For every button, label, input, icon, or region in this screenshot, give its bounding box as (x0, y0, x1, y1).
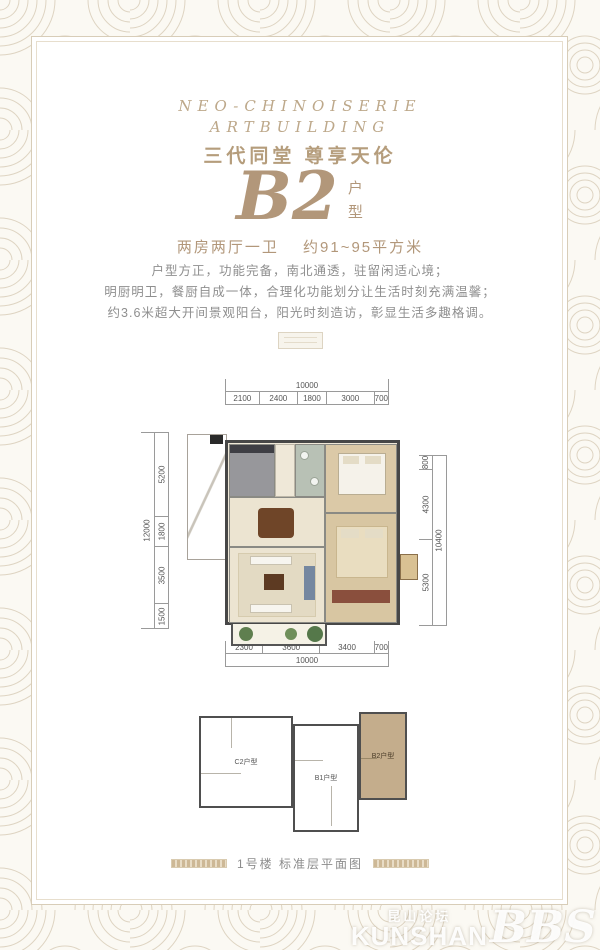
standard-floor-key-plan: C2户型 B1户型 B2户型 (197, 706, 409, 836)
keyplan-unit-label: C2户型 (235, 757, 258, 767)
bed (338, 453, 386, 495)
dimension-chain-right: 800 4300 5300 10400 (419, 455, 447, 626)
description-line: 明厨明卫，餐厨自成一体，合理化功能划分让生活时刻充满温馨； (0, 282, 600, 303)
dining-area (229, 497, 325, 547)
bath-fixture (310, 477, 319, 486)
dimension-value: 3000 (327, 392, 375, 404)
pillow (365, 456, 381, 464)
legend-box (278, 332, 323, 349)
sofa (250, 604, 292, 613)
landscape-balcony (231, 624, 327, 646)
watermark: 昆山论坛 KUNSHAN BBS (351, 908, 596, 948)
floor-caption: 1号楼 标准层平面图 (0, 855, 600, 872)
dimension-total-row: 10000 (225, 379, 389, 392)
plant (285, 628, 297, 640)
unit-rooms-spec: 两房两厅一卫 (177, 239, 279, 256)
dimension-value: 2100 (226, 392, 260, 404)
ornament-bar-right (373, 859, 429, 868)
open-terrace (187, 434, 227, 560)
poster-page: NEO-CHINOISERIE ARTBUILDING 三代同堂 尊享天伦 B2… (0, 0, 600, 950)
tv-cabinet (304, 566, 315, 600)
kitchen-area (229, 444, 275, 497)
english-title-line1: NEO-CHINOISERIE (0, 97, 600, 115)
dimension-total: 10000 (226, 379, 389, 391)
description-line: 约3.6米超大开间景观阳台，阳光时刻造访，彰显生活多趣格调。 (0, 303, 600, 324)
ornament-bar-left (171, 859, 227, 868)
dimension-total: 12000 (141, 433, 154, 629)
kitchen-counter (230, 445, 274, 453)
english-title-line2: ARTBUILDING (0, 118, 600, 136)
watermark-bbs: BBS (490, 908, 596, 948)
floor-plan (187, 428, 422, 648)
dimension-value: 5200 (155, 433, 168, 517)
caption-text: 1号楼 标准层平面图 (237, 855, 363, 872)
keyplan-unit-c2: C2户型 (199, 716, 293, 808)
watermark-kunshan: KUNSHAN (351, 925, 488, 948)
pillow (341, 529, 359, 538)
dimension-value: 1500 (155, 604, 168, 629)
master-bedroom-area (325, 513, 397, 623)
structural-column (210, 435, 223, 444)
plant (239, 627, 253, 641)
unit-type-char-top: 户 (348, 177, 364, 198)
dimension-segments-col: 5200 1800 3500 1500 (155, 432, 169, 629)
master-bed (336, 526, 388, 578)
pillow (365, 529, 383, 538)
sofa (250, 556, 292, 565)
dimension-value: 3500 (155, 547, 168, 604)
unit-spec-line: 两房两厅一卫 约91~95平方米 (0, 236, 600, 257)
pillow (343, 456, 359, 464)
dimension-value: 1800 (155, 517, 168, 547)
unit-name: B2 (236, 163, 338, 229)
dimension-total: 10000 (226, 654, 389, 666)
keyplan-unit-label: B1户型 (315, 773, 338, 783)
plant (307, 626, 323, 642)
dining-table (258, 508, 294, 538)
dimension-chain-top: 10000 2100 2400 1800 3000 700 (225, 379, 389, 405)
bedroom-rug (332, 590, 390, 603)
dimension-total-col: 12000 (141, 432, 155, 629)
dimension-total: 10400 (433, 456, 446, 626)
dimension-total-row: 10000 (225, 654, 389, 667)
unit-description: 户型方正，功能完备，南北通透，驻留闲适心境； 明厨明卫，餐厨自成一体，合理化功能… (0, 261, 600, 324)
unit-type-stack: 户 型 (348, 177, 364, 222)
unit-type-char-bottom: 型 (348, 201, 364, 222)
coffee-table (264, 574, 284, 590)
unit-name-block: B2 户 型 (0, 163, 600, 229)
watermark-left: 昆山论坛 KUNSHAN (351, 911, 488, 948)
equipment-balcony (400, 554, 418, 580)
dimension-value: 1800 (298, 392, 327, 404)
living-room-area (229, 547, 325, 623)
description-line: 户型方正，功能完备，南北通透，驻留闲适心境； (0, 261, 600, 282)
bath-fixture (300, 451, 309, 460)
keyplan-unit-b1: B1户型 (293, 724, 359, 832)
dimension-value: 700 (375, 392, 389, 404)
dimension-segments-row: 2100 2400 1800 3000 700 (225, 392, 389, 405)
bathroom-area (295, 444, 325, 497)
unit-area: 约91~95平方米 (303, 239, 423, 256)
unit-outline (225, 440, 400, 625)
dimension-total-col: 10400 (433, 455, 447, 626)
dimension-value: 2400 (260, 392, 298, 404)
keyplan-unit-b2-highlighted: B2户型 (359, 712, 407, 800)
keyplan-unit-label: B2户型 (372, 751, 395, 761)
dimension-chain-left: 12000 5200 1800 3500 1500 (141, 432, 169, 629)
second-bedroom-area (325, 444, 397, 513)
hallway-area (275, 444, 295, 497)
